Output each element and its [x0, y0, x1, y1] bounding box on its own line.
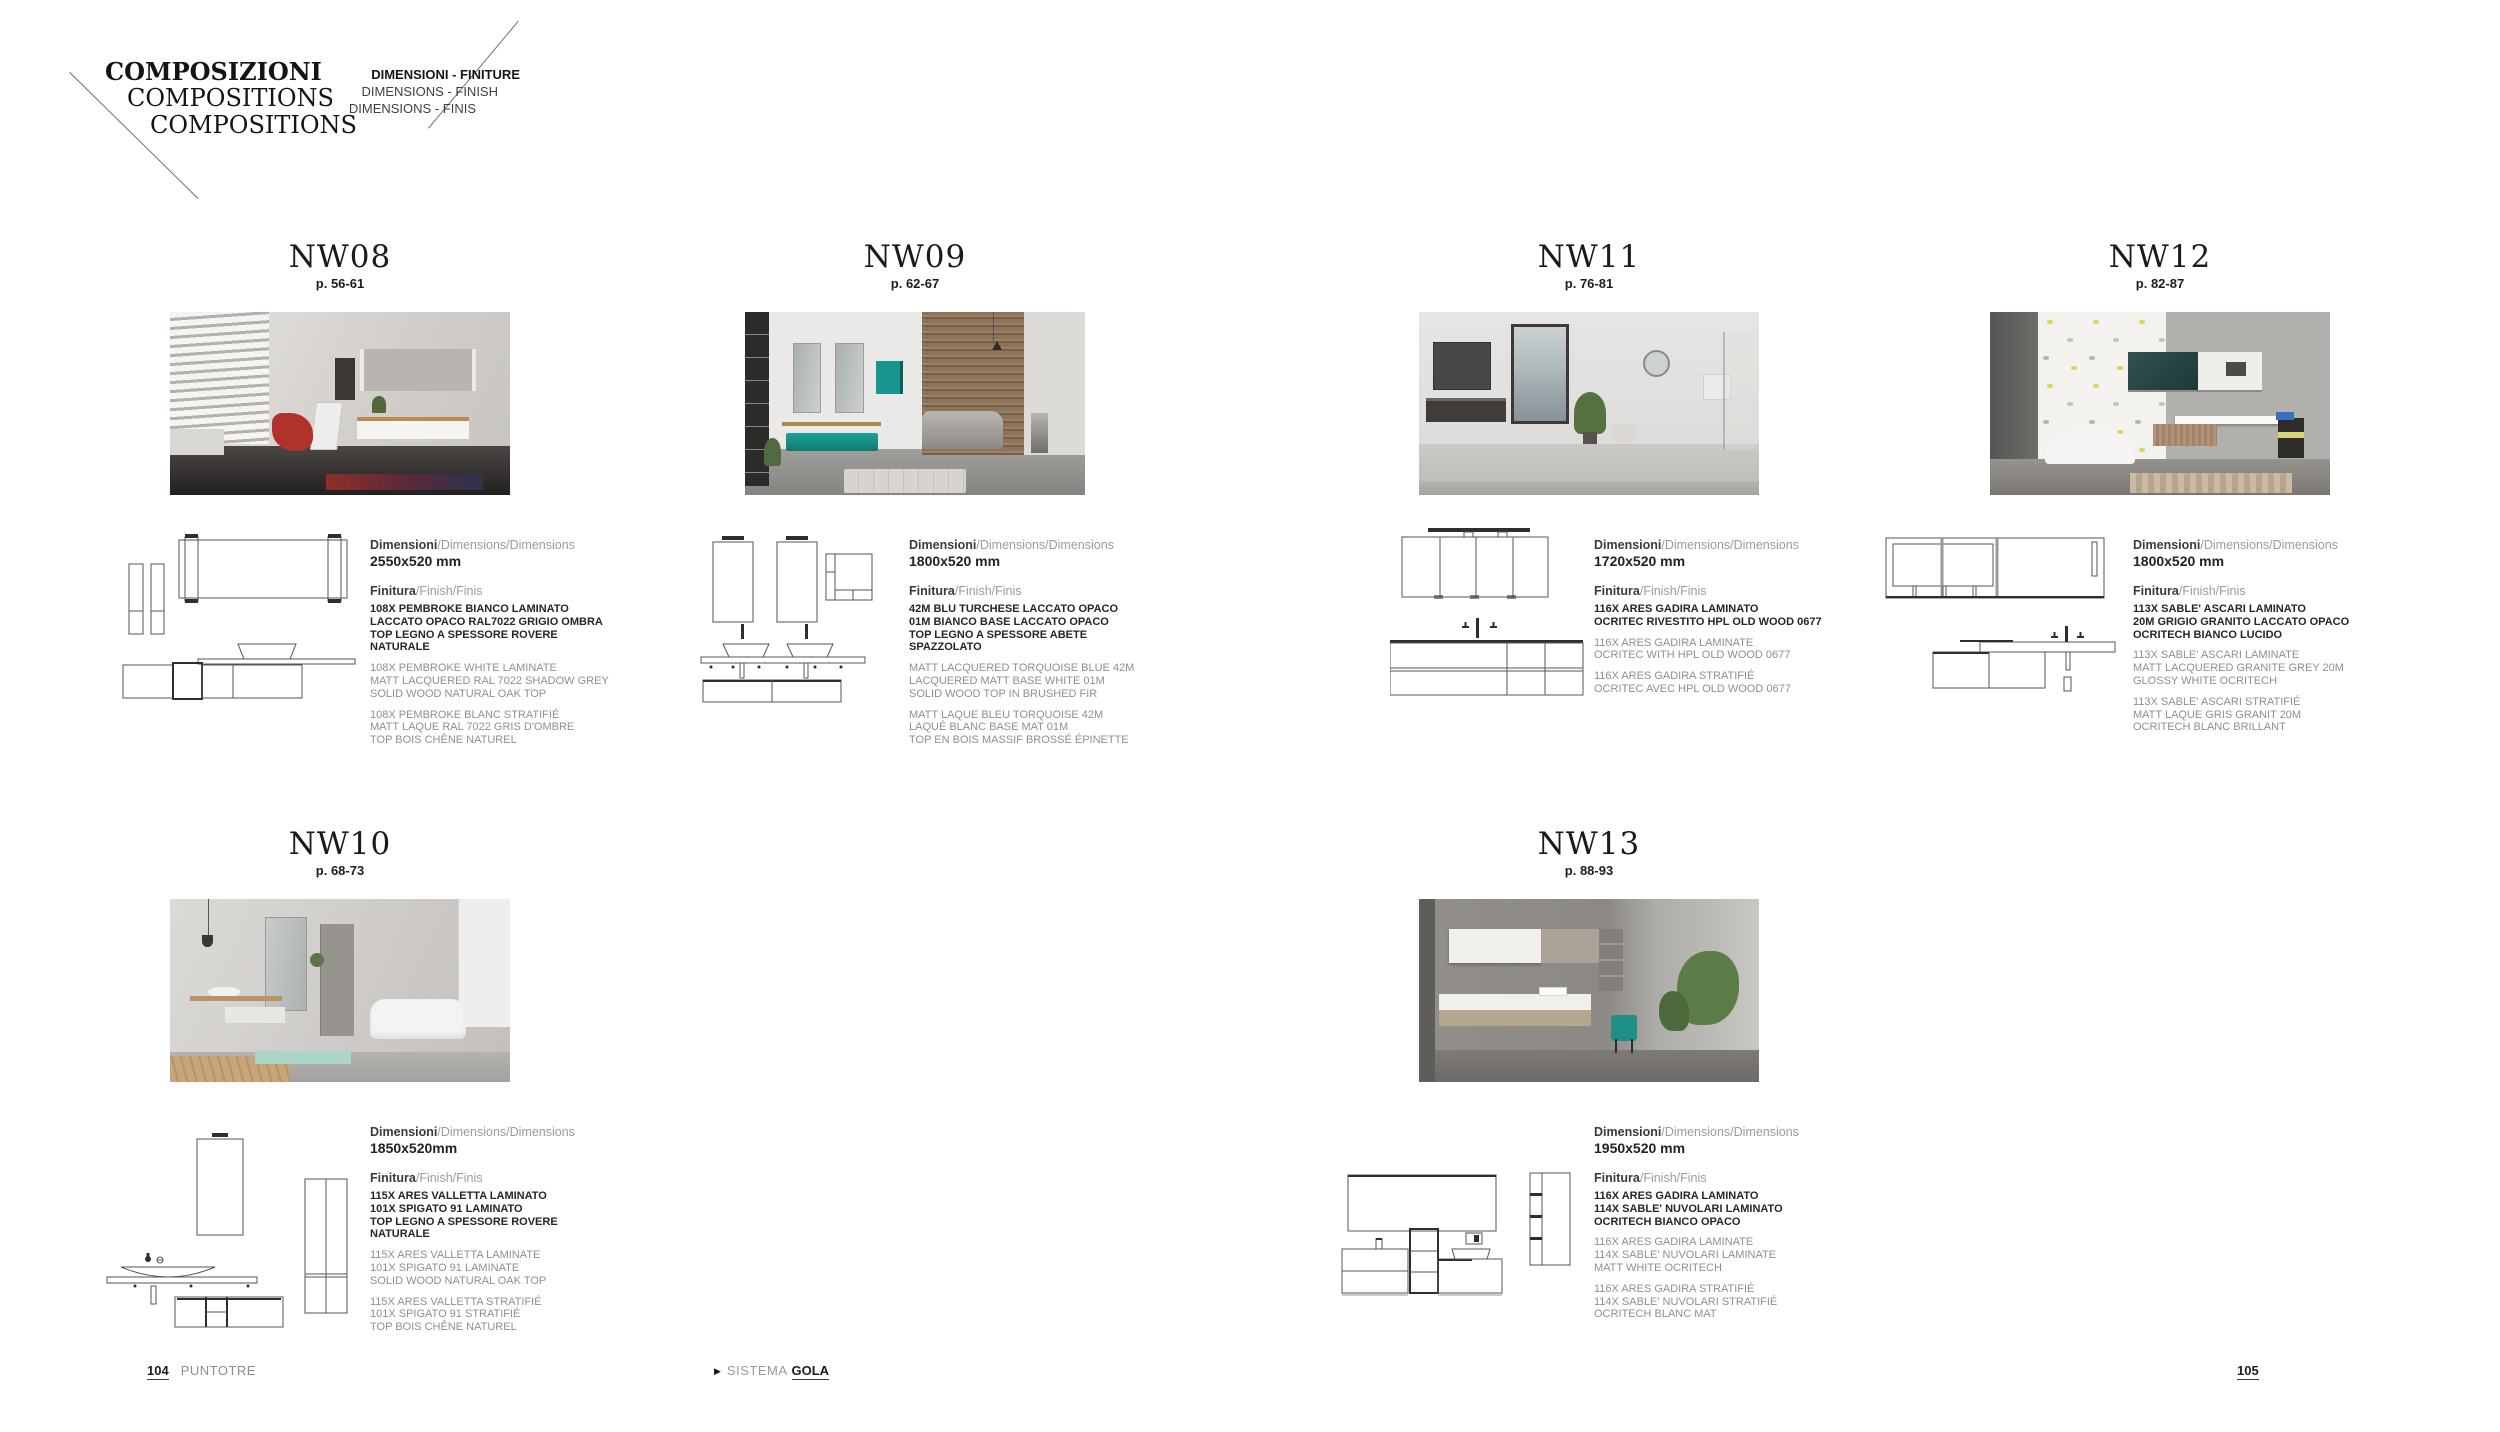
finish-french: 108X PEMBROKE BLANC STRATIFIÉ MATT LAQUE…: [370, 709, 610, 747]
dimensions-value: 1850x520mm: [370, 1140, 610, 1156]
page-title-line: COMPOSIZIONI: [105, 58, 357, 85]
footer-right: 105: [2237, 1363, 2259, 1378]
brand-name: PUNTOTRE: [181, 1363, 256, 1378]
finish-italian: 42M BLU TURCHESE LACCATO OPACO 01M BIANC…: [909, 603, 1149, 654]
dimensions-value: 1800x520 mm: [909, 553, 1149, 569]
composition-page-ref: p. 88-93: [1469, 863, 1709, 878]
composition-page-ref: p. 82-87: [2040, 276, 2280, 291]
photo-nw10: [170, 899, 510, 1082]
page-title-line: COMPOSITIONS: [127, 85, 357, 112]
dimensions-label: Dimensioni/Dimensions/Dimensions: [370, 538, 610, 552]
page-title: COMPOSIZIONI COMPOSITIONS COMPOSITIONS: [105, 58, 357, 139]
composition-nw11: NW11 p. 76-81: [1380, 240, 1880, 745]
dimensions-label: Dimensioni/Dimensions/Dimensions: [2133, 538, 2373, 552]
page-subtitle-line: DIMENSIONS - FINIS: [348, 100, 476, 117]
technical-drawing-nw11: [1390, 522, 1585, 702]
finish-label: Finitura/Finish/Finis: [909, 584, 1149, 598]
photo-nw11: [1419, 312, 1759, 495]
composition-code: NW12: [2040, 240, 2280, 274]
dimensions-value: 2550x520 mm: [370, 553, 610, 569]
finish-label: Finitura/Finish/Finis: [1594, 1171, 1834, 1185]
footer-center: ▶SISTEMAGOLA: [714, 1363, 829, 1378]
finish-french: 116X ARES GADIRA STRATIFIÉ OCRITEC AVEC …: [1594, 670, 1834, 696]
finish-french: 115X ARES VALLETTA STRATIFIÉ 101X SPIGAT…: [370, 1296, 610, 1334]
finish-label: Finitura/Finish/Finis: [370, 1171, 610, 1185]
finish-italian: 116X ARES GADIRA LAMINATO 114X SABLE' NU…: [1594, 1190, 1834, 1228]
composition-code: NW09: [795, 240, 1035, 274]
finish-italian: 116X ARES GADIRA LAMINATO OCRITEC RIVEST…: [1594, 603, 1834, 629]
composition-page-ref: p. 56-61: [220, 276, 460, 291]
composition-nw08: NW08 p. 56-61: [120, 240, 620, 745]
composition-code: NW11: [1469, 240, 1709, 274]
finish-french: 113X SABLE' ASCARI STRATIFIÉ MATT LAQUE …: [2133, 696, 2373, 734]
finish-label: Finitura/Finish/Finis: [1594, 584, 1834, 598]
technical-drawing-nw13: [1340, 1171, 1590, 1321]
composition-nw09: NW09 p. 62-67: [690, 240, 1190, 745]
composition-code: NW08: [220, 240, 460, 274]
page-number-left: 104: [147, 1363, 169, 1380]
dimensions-value: 1720x520 mm: [1594, 553, 1834, 569]
page-subtitle-line: DIMENSIONS - FINISH: [348, 83, 498, 100]
dimensions-value: 1800x520 mm: [2133, 553, 2373, 569]
photo-nw12: [1990, 312, 2330, 495]
technical-drawing-nw10: [105, 1119, 355, 1334]
finish-english: 113X SABLE' ASCARI LAMINATE MATT LACQUER…: [2133, 649, 2373, 687]
catalog-spread: COMPOSIZIONI COMPOSITIONS COMPOSITIONS D…: [0, 0, 2500, 1432]
composition-nw12: NW12 p. 82-87: [1878, 240, 2378, 745]
composition-page-ref: p. 62-67: [795, 276, 1035, 291]
finish-french: 116X ARES GADIRA STRATIFIÉ 114X SABLE' N…: [1594, 1283, 1834, 1321]
technical-drawing-nw08: [122, 528, 357, 700]
finish-italian: 115X ARES VALLETTA LAMINATO 101X SPIGATO…: [370, 1190, 610, 1241]
composition-nw13: NW13 p. 88-93: [1335, 827, 1835, 1332]
finish-english: 115X ARES VALLETTA LAMINATE 101X SPIGATO…: [370, 1249, 610, 1287]
dimensions-label: Dimensioni/Dimensions/Dimensions: [370, 1125, 610, 1139]
finish-italian: 108X PEMBROKE BIANCO LAMINATO LACCATO OP…: [370, 603, 610, 654]
composition-nw10: NW10 p. 68-73: [105, 827, 605, 1332]
composition-code: NW10: [220, 827, 460, 861]
composition-page-ref: p. 76-81: [1469, 276, 1709, 291]
finish-english: 116X ARES GADIRA LAMINATE OCRITEC WITH H…: [1594, 637, 1834, 663]
finish-italian: 113X SABLE' ASCARI LAMINATO 20M GRIGIO G…: [2133, 603, 2373, 641]
dimensions-label: Dimensioni/Dimensions/Dimensions: [1594, 538, 1834, 552]
footer-left: 104PUNTOTRE: [147, 1363, 256, 1378]
page-subtitle-line: DIMENSIONI - FINITURE: [348, 66, 520, 83]
page-number-right: 105: [2237, 1363, 2259, 1380]
technical-drawing-nw09: [695, 532, 910, 704]
finish-french: MATT LAQUE BLEU TORQUOISE 42M LAQUÉ BLAN…: [909, 709, 1149, 747]
arrow-right-icon: ▶: [714, 1366, 721, 1376]
technical-drawing-nw12: [1885, 532, 2130, 702]
finish-label: Finitura/Finish/Finis: [2133, 584, 2373, 598]
finish-english: MATT LACQUERED TORQUOISE BLUE 42M LACQUE…: [909, 662, 1149, 700]
composition-page-ref: p. 68-73: [220, 863, 460, 878]
photo-nw08: [170, 312, 510, 495]
photo-nw13: [1419, 899, 1759, 1082]
dimensions-value: 1950x520 mm: [1594, 1140, 1834, 1156]
dimensions-label: Dimensioni/Dimensions/Dimensions: [1594, 1125, 1834, 1139]
system-label: SISTEMA: [727, 1363, 788, 1378]
finish-english: 116X ARES GADIRA LAMINATE 114X SABLE' NU…: [1594, 1236, 1834, 1274]
page-title-line: COMPOSITIONS: [150, 112, 357, 139]
finish-label: Finitura/Finish/Finis: [370, 584, 610, 598]
system-name: GOLA: [792, 1363, 830, 1380]
page-subtitle: DIMENSIONI - FINITURE DIMENSIONS - FINIS…: [348, 66, 520, 117]
finish-english: 108X PEMBROKE WHITE LAMINATE MATT LACQUE…: [370, 662, 610, 700]
dimensions-label: Dimensioni/Dimensions/Dimensions: [909, 538, 1149, 552]
composition-code: NW13: [1469, 827, 1709, 861]
photo-nw09: [745, 312, 1085, 495]
